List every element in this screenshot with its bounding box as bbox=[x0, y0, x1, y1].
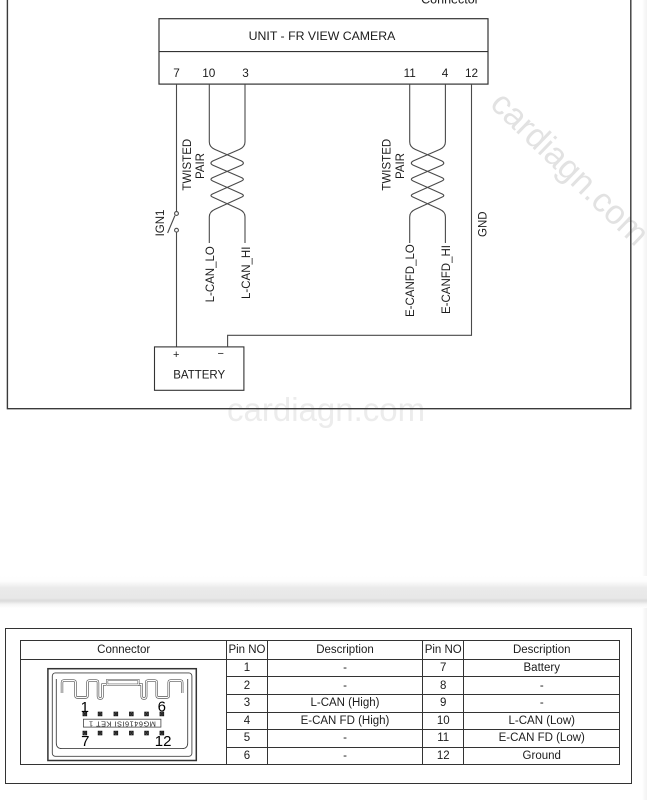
svg-text:PAIR: PAIR bbox=[395, 153, 407, 179]
svg-text:+: + bbox=[173, 349, 179, 361]
svg-text:Connector: Connector bbox=[421, 0, 479, 7]
svg-text:TWISTED: TWISTED bbox=[182, 139, 194, 191]
svg-text:cardiagn.com: cardiagn.com bbox=[483, 84, 647, 253]
svg-text:MG6416ISI KET 1: MG6416ISI KET 1 bbox=[89, 720, 156, 729]
svg-text:BATTERY: BATTERY bbox=[173, 370, 225, 382]
svg-text:1: 1 bbox=[81, 699, 89, 716]
svg-text:L-CAN_LO: L-CAN_LO bbox=[205, 246, 217, 302]
svg-text:3: 3 bbox=[242, 66, 249, 80]
svg-text:PAIR: PAIR bbox=[195, 153, 207, 179]
svg-text:7: 7 bbox=[173, 66, 180, 80]
svg-text:IGN1: IGN1 bbox=[155, 210, 167, 237]
svg-text:10: 10 bbox=[202, 66, 216, 80]
svg-text:cardiagn.com: cardiagn.com bbox=[227, 391, 425, 428]
svg-text:6: 6 bbox=[158, 699, 166, 716]
svg-text:TWISTED: TWISTED bbox=[382, 139, 394, 191]
svg-text:11: 11 bbox=[404, 66, 416, 80]
svg-text:−: − bbox=[217, 348, 223, 360]
svg-text:12: 12 bbox=[465, 66, 478, 80]
svg-text:GND: GND bbox=[478, 211, 490, 237]
svg-text:12: 12 bbox=[155, 733, 172, 750]
svg-text:E-CANFD_LO: E-CANFD_LO bbox=[405, 244, 417, 317]
svg-text:L-CAN_HI: L-CAN_HI bbox=[241, 247, 253, 299]
svg-text:4: 4 bbox=[442, 66, 449, 80]
svg-text:7: 7 bbox=[81, 733, 89, 750]
svg-text:UNIT - FR VIEW CAMERA: UNIT - FR VIEW CAMERA bbox=[249, 29, 396, 43]
svg-text:E-CANFD_HI: E-CANFD_HI bbox=[441, 245, 453, 314]
